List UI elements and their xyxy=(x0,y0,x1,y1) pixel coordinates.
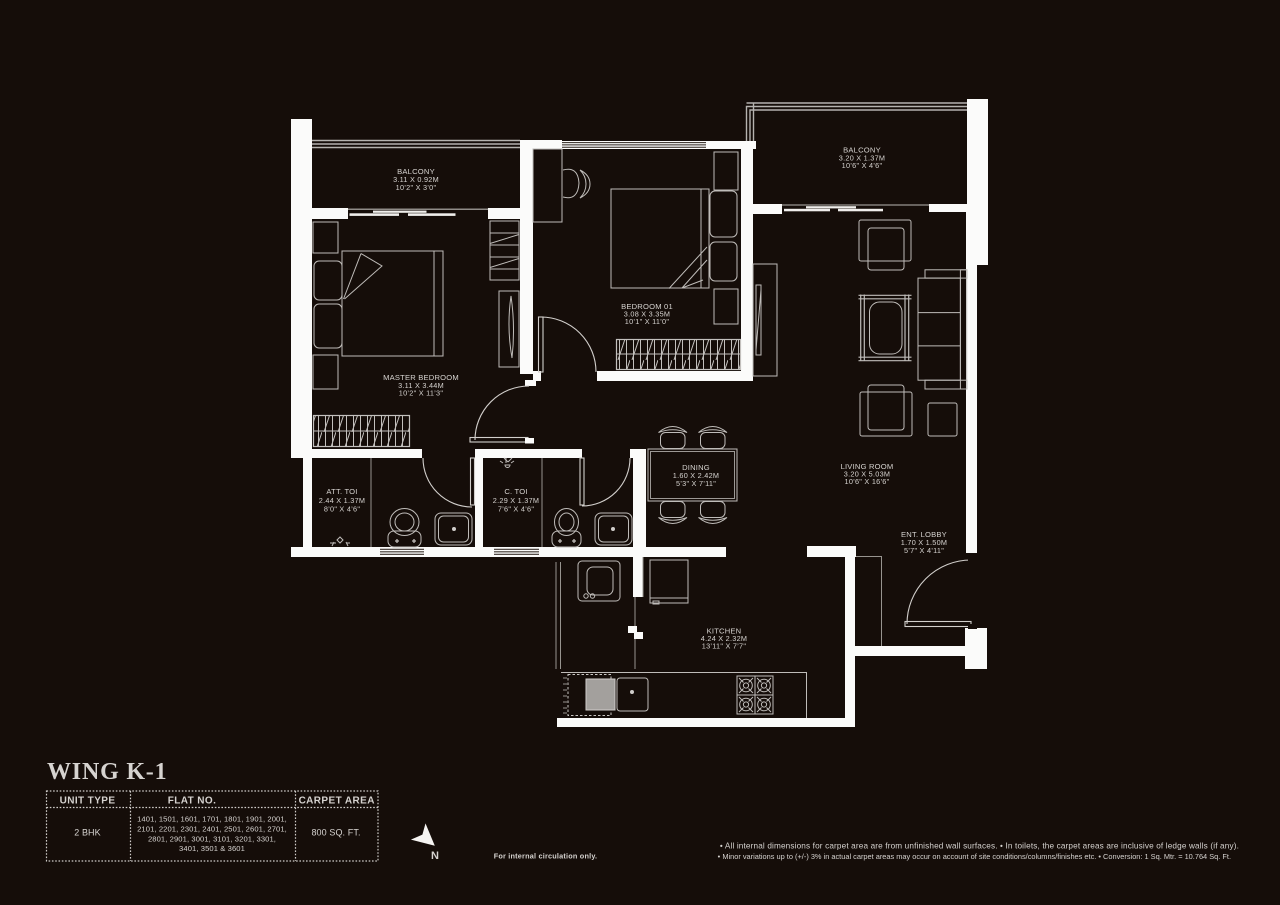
svg-text:10’2" X 3’0": 10’2" X 3’0" xyxy=(396,183,437,192)
svg-text:• Minor variations up to (+/-): • Minor variations up to (+/-) 3% in act… xyxy=(718,852,1231,861)
svg-text:10’2" X 11’3": 10’2" X 11’3" xyxy=(399,388,444,397)
svg-text:2801, 2901, 3001, 3101, 3201,: 2801, 2901, 3001, 3101, 3201, 3301, xyxy=(148,834,276,843)
svg-text:13’11" X 7’7": 13’11" X 7’7" xyxy=(702,641,747,650)
svg-text:C. TOI: C. TOI xyxy=(504,487,527,496)
svg-text:10’6" X 4’6": 10’6" X 4’6" xyxy=(842,161,883,170)
svg-text:800 SQ. FT.: 800 SQ. FT. xyxy=(311,828,360,838)
svg-text:10’1" X 11’0": 10’1" X 11’0" xyxy=(625,317,670,326)
svg-text:5’3" X 7’11": 5’3" X 7’11" xyxy=(676,479,716,488)
svg-text:2 BHK: 2 BHK xyxy=(74,828,101,838)
svg-text:1401, 1501, 1601, 1701, 1801,: 1401, 1501, 1601, 1701, 1801, 1901, 2001… xyxy=(137,814,287,823)
svg-text:• All internal dimensions for: • All internal dimensions for carpet are… xyxy=(720,841,1239,850)
svg-text:N: N xyxy=(431,850,439,862)
svg-text:CARPET AREA: CARPET AREA xyxy=(299,795,375,806)
svg-text:7’6" X 4’6": 7’6" X 4’6" xyxy=(498,504,534,513)
svg-text:8’0" X 4’6": 8’0" X 4’6" xyxy=(324,504,360,513)
svg-text:3401, 3501 & 3601: 3401, 3501 & 3601 xyxy=(179,844,245,853)
svg-text:ATT. TOI: ATT. TOI xyxy=(326,487,357,496)
svg-text:UNIT TYPE: UNIT TYPE xyxy=(60,795,116,806)
svg-text:2101, 2201, 2301, 2401, 2501,: 2101, 2201, 2301, 2401, 2501, 2601, 2701… xyxy=(137,824,287,833)
svg-text:10’6" X 16’6": 10’6" X 16’6" xyxy=(845,477,890,486)
svg-text:FLAT NO.: FLAT NO. xyxy=(168,795,217,806)
svg-text:WING K-1: WING K-1 xyxy=(47,759,167,785)
svg-text:For internal circulation only.: For internal circulation only. xyxy=(494,851,598,860)
svg-text:5’7" X 4’11": 5’7" X 4’11" xyxy=(904,546,944,555)
